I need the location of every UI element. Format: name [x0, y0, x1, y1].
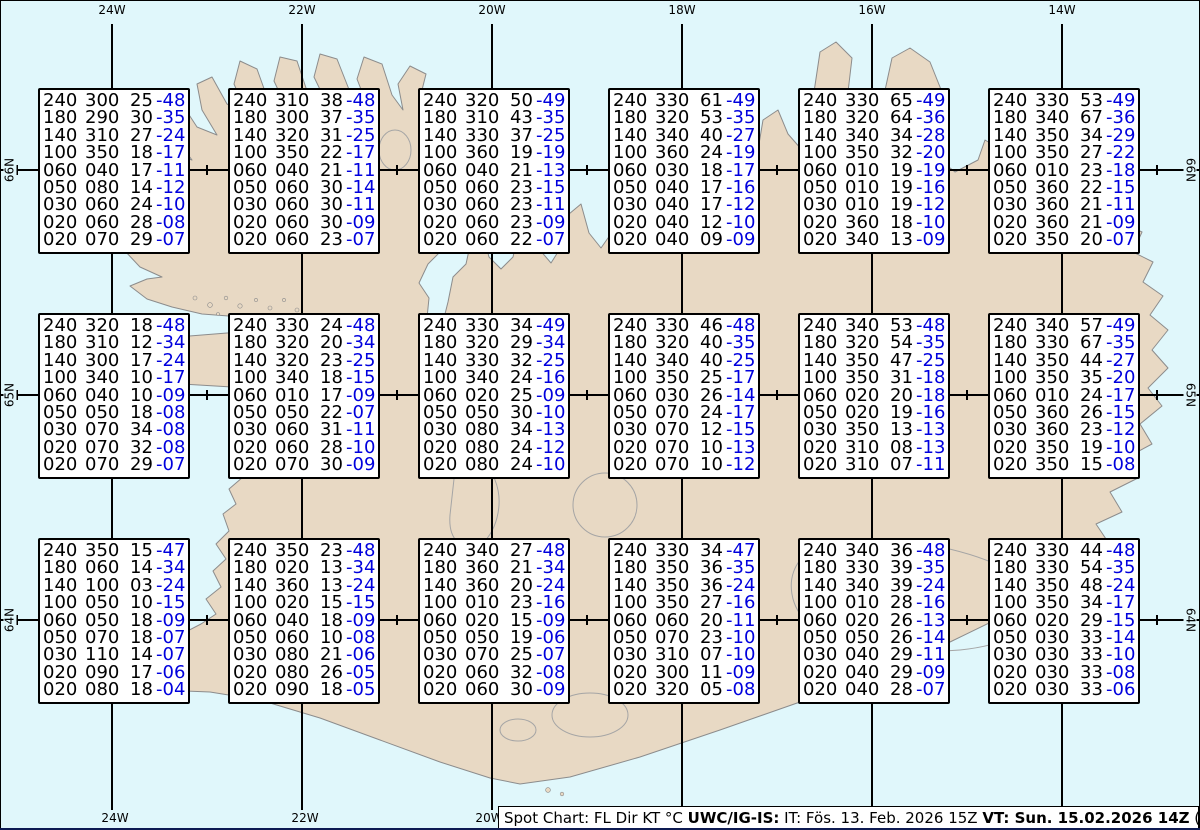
spot-data-box: 24034036-4818033039-3514034039-241000102… [798, 538, 950, 704]
fl-value: 020 [803, 231, 845, 248]
kt-value: 22 [510, 231, 536, 248]
fl-value: 020 [613, 681, 655, 698]
fl-value: 100 [233, 369, 275, 386]
kt-value: 23 [320, 231, 346, 248]
spot-data-box: 24032018-4818031012-3414030017-241003401… [38, 313, 190, 479]
spot-data-box: 24033034-4918032029-3414033032-251003402… [418, 313, 570, 479]
footer-text-segment: VT: Sun. 15.02.2026 14Z [982, 809, 1189, 827]
spot-row: 10035018-17 [43, 144, 185, 161]
temp-value: -16 [536, 594, 565, 611]
graticule-tick [586, 165, 588, 175]
kt-value: 28 [890, 681, 916, 698]
spot-data-box: 24031038-4818030037-3514032031-251003502… [228, 88, 380, 254]
spot-row: 02004028-07 [803, 681, 945, 698]
spot-data-box: 24035023-4818002013-3414036013-241000201… [228, 538, 380, 704]
kt-value: 18 [130, 144, 156, 161]
fl-value: 020 [613, 456, 655, 473]
dir-value: 340 [275, 369, 320, 386]
dir-value: 030 [1035, 681, 1080, 698]
kt-value: 30 [510, 681, 536, 698]
kt-value: 24 [510, 369, 536, 386]
spot-row: 02032005-08 [613, 681, 755, 698]
graticule-tick [206, 165, 208, 175]
dir-value: 350 [1035, 369, 1080, 386]
temp-value: -09 [726, 231, 755, 248]
dir-value: 350 [85, 144, 130, 161]
temp-value: -05 [346, 681, 375, 698]
dir-value: 080 [465, 456, 510, 473]
lon-label-top: 16W [856, 4, 887, 17]
fl-value: 020 [233, 456, 275, 473]
fl-value: 020 [43, 231, 85, 248]
fl-value: 020 [423, 681, 465, 698]
temp-value: -16 [536, 369, 565, 386]
graticule-tick [396, 165, 398, 175]
dir-value: 010 [845, 594, 890, 611]
dir-value: 070 [655, 456, 700, 473]
kt-value: 22 [320, 144, 346, 161]
dir-value: 070 [275, 456, 320, 473]
dir-value: 360 [655, 144, 700, 161]
spot-row: 10034018-15 [233, 369, 375, 386]
spot-row: 10035034-17 [993, 594, 1135, 611]
spot-row: 02035015-08 [993, 456, 1135, 473]
graticule-tick [1156, 615, 1158, 625]
fl-value: 100 [803, 369, 845, 386]
temp-value: -07 [346, 231, 375, 248]
fl-value: 020 [993, 681, 1035, 698]
dir-value: 060 [465, 231, 510, 248]
kt-value: 25 [700, 369, 726, 386]
graticule-tick [1156, 165, 1158, 175]
dir-value: 060 [465, 681, 510, 698]
footer-text-segment: Spot Chart: FL Dir KT °C [504, 809, 688, 827]
spot-row: 02031007-11 [803, 456, 945, 473]
kt-value: 33 [1080, 681, 1106, 698]
temp-value: -07 [156, 231, 185, 248]
kt-value: 32 [890, 144, 916, 161]
kt-value: 29 [130, 231, 156, 248]
graticule-tick [586, 390, 588, 400]
fl-value: 100 [613, 369, 655, 386]
temp-value: -07 [916, 681, 945, 698]
spot-row: 10005010-15 [43, 594, 185, 611]
kt-value: 28 [890, 594, 916, 611]
footer-text-segment: UWC/IG-IS: [688, 809, 780, 827]
temp-value: -18 [916, 369, 945, 386]
kt-value: 05 [700, 681, 726, 698]
spot-row: 02007029-07 [43, 231, 185, 248]
temp-value: -19 [536, 144, 565, 161]
lat-label-left: 65N [4, 381, 17, 409]
lon-label-bottom: 24W [99, 812, 130, 825]
fl-value: 100 [43, 594, 85, 611]
spot-data-box: 24032050-4918031043-3514033037-251003601… [418, 88, 570, 254]
temp-value: -17 [156, 369, 185, 386]
lat-label-right: 64N [1184, 606, 1197, 634]
fl-value: 100 [233, 144, 275, 161]
dir-value: 040 [655, 231, 700, 248]
graticule-tick [776, 165, 778, 175]
graticule-tick [206, 615, 208, 625]
temp-value: -15 [346, 369, 375, 386]
spot-row: 10035027-22 [993, 144, 1135, 161]
spot-row: 10035027-16 [613, 594, 755, 611]
temp-value: -07 [156, 456, 185, 473]
spot-row: 10035032-20 [803, 144, 945, 161]
spot-row: 02007030-09 [233, 456, 375, 473]
dir-value: 350 [655, 369, 700, 386]
fl-value: 020 [613, 231, 655, 248]
temp-value: -20 [916, 144, 945, 161]
dir-value: 090 [275, 681, 320, 698]
fl-value: 020 [993, 231, 1035, 248]
kt-value: 24 [700, 144, 726, 161]
temp-value: -19 [726, 144, 755, 161]
spot-data-box: 24033024-4818032020-3414032023-251003401… [228, 313, 380, 479]
fl-value: 100 [613, 594, 655, 611]
kt-value: 18 [320, 369, 346, 386]
fl-value: 100 [43, 369, 85, 386]
spot-row: 10035031-18 [803, 369, 945, 386]
temp-value: -10 [536, 456, 565, 473]
dir-value: 340 [85, 369, 130, 386]
temp-value: -08 [726, 681, 755, 698]
footer-bar: Spot Chart: FL Dir KT °C UWC/IG-IS: IT: … [498, 806, 1199, 829]
lon-label-top: 18W [666, 4, 697, 17]
spot-row: 10036019-19 [423, 144, 565, 161]
spot-data-box: 24035015-4718006014-3414010003-241000501… [38, 538, 190, 704]
fl-value: 020 [233, 681, 275, 698]
kt-value: 18 [320, 681, 346, 698]
temp-value: -09 [916, 231, 945, 248]
fl-value: 020 [993, 456, 1035, 473]
dir-value: 060 [275, 231, 320, 248]
kt-value: 19 [510, 144, 536, 161]
spot-data-box: 24034057-4918033067-3514035044-271003503… [988, 313, 1140, 479]
lat-label-right: 65N [1184, 381, 1197, 409]
fl-value: 100 [993, 369, 1035, 386]
fl-value: 100 [993, 594, 1035, 611]
temp-value: -04 [156, 681, 185, 698]
lat-label-left: 66N [4, 156, 17, 184]
spot-row: 10002015-15 [233, 594, 375, 611]
spot-row: 10001023-16 [423, 594, 565, 611]
graticule-tick [966, 165, 968, 175]
kt-value: 24 [510, 456, 536, 473]
dir-value: 350 [1035, 144, 1080, 161]
temp-value: -17 [346, 144, 375, 161]
fl-value: 020 [423, 231, 465, 248]
spot-data-box: 24030025-4818029030-3514031027-241003501… [38, 88, 190, 254]
spot-row: 10035022-17 [233, 144, 375, 161]
fl-value: 100 [233, 594, 275, 611]
spot-data-box: 24033034-4718035036-3514035036-241003502… [608, 538, 760, 704]
kt-value: 27 [1080, 144, 1106, 161]
spot-row: 10034024-16 [423, 369, 565, 386]
fl-value: 020 [803, 681, 845, 698]
kt-value: 10 [700, 456, 726, 473]
fl-value: 020 [43, 681, 85, 698]
fl-value: 100 [43, 144, 85, 161]
spot-row: 02006030-09 [423, 681, 565, 698]
spot-row: 02006023-07 [233, 231, 375, 248]
lon-label-bottom: 22W [289, 812, 320, 825]
kt-value: 10 [130, 369, 156, 386]
spot-row: 10036024-19 [613, 144, 755, 161]
spot-row: 02007029-07 [43, 456, 185, 473]
graticule-tick [966, 390, 968, 400]
temp-value: -17 [156, 144, 185, 161]
graticule-tick [1156, 390, 1158, 400]
temp-value: -15 [346, 594, 375, 611]
dir-value: 020 [275, 594, 320, 611]
kt-value: 10 [130, 594, 156, 611]
lon-label-top: 20W [476, 4, 507, 17]
spot-row: 02008018-04 [43, 681, 185, 698]
spot-row: 02035020-07 [993, 231, 1135, 248]
lon-label-top: 24W [96, 4, 127, 17]
dir-value: 080 [85, 681, 130, 698]
temp-value: -07 [536, 231, 565, 248]
graticule-tick [206, 390, 208, 400]
temp-value: -17 [1106, 594, 1135, 611]
graticule-tick [776, 390, 778, 400]
fl-value: 100 [423, 144, 465, 161]
temp-value: -20 [1106, 369, 1135, 386]
fl-value: 100 [423, 594, 465, 611]
spot-chart-page: 24030025-4818029030-3514031027-241003501… [0, 0, 1200, 830]
spot-row: 02008024-10 [423, 456, 565, 473]
spot-data-box: 24033065-4918032064-3614034034-281003503… [798, 88, 950, 254]
kt-value: 18 [130, 681, 156, 698]
kt-value: 13 [890, 231, 916, 248]
spot-row: 02034013-09 [803, 231, 945, 248]
lon-label-top: 22W [286, 4, 317, 17]
fl-value: 020 [803, 456, 845, 473]
kt-value: 29 [130, 456, 156, 473]
dir-value: 320 [655, 681, 700, 698]
spot-row: 02009018-05 [233, 681, 375, 698]
footer-text-segment: (+47 h) [1190, 809, 1200, 827]
kt-value: 31 [890, 369, 916, 386]
lon-label-top: 14W [1046, 4, 1077, 17]
dir-value: 350 [1035, 594, 1080, 611]
kt-value: 09 [700, 231, 726, 248]
dir-value: 350 [1035, 231, 1080, 248]
spot-row: 02007010-12 [613, 456, 755, 473]
fl-value: 020 [423, 456, 465, 473]
temp-value: -22 [1106, 144, 1135, 161]
dir-value: 350 [1035, 456, 1080, 473]
fl-value: 020 [43, 456, 85, 473]
dir-value: 360 [465, 144, 510, 161]
temp-value: -08 [1106, 456, 1135, 473]
kt-value: 15 [320, 594, 346, 611]
temp-value: -12 [726, 456, 755, 473]
dir-value: 350 [655, 594, 700, 611]
kt-value: 30 [320, 456, 346, 473]
graticule-tick [776, 615, 778, 625]
kt-value: 15 [1080, 456, 1106, 473]
spot-data-box: 24033046-4818032040-3514034040-251003502… [608, 313, 760, 479]
kt-value: 20 [1080, 231, 1106, 248]
dir-value: 040 [845, 681, 890, 698]
dir-value: 310 [845, 456, 890, 473]
graticule-tick [586, 615, 588, 625]
graticule-tick [396, 615, 398, 625]
temp-value: -15 [156, 594, 185, 611]
temp-value: -16 [916, 594, 945, 611]
fl-value: 100 [803, 144, 845, 161]
spot-row: 10035025-17 [613, 369, 755, 386]
temp-value: -11 [916, 456, 945, 473]
fl-value: 100 [423, 369, 465, 386]
kt-value: 07 [890, 456, 916, 473]
graticule-tick [396, 390, 398, 400]
spot-row: 10001028-16 [803, 594, 945, 611]
dir-value: 350 [845, 144, 890, 161]
dir-value: 070 [85, 456, 130, 473]
kt-value: 34 [1080, 594, 1106, 611]
dir-value: 350 [275, 144, 320, 161]
dir-value: 340 [465, 369, 510, 386]
dir-value: 350 [845, 369, 890, 386]
footer-text-segment: IT: Fös. 13. Feb. 2026 15Z [779, 809, 982, 827]
graticule-tick [966, 615, 968, 625]
temp-value: -17 [726, 369, 755, 386]
dir-value: 050 [85, 594, 130, 611]
spot-row: 10035035-20 [993, 369, 1135, 386]
kt-value: 27 [700, 594, 726, 611]
fl-value: 100 [993, 144, 1035, 161]
spot-row: 02004009-09 [613, 231, 755, 248]
spot-data-box: 24033044-4818033054-3514035048-241003503… [988, 538, 1140, 704]
kt-value: 23 [510, 594, 536, 611]
kt-value: 35 [1080, 369, 1106, 386]
lat-label-left: 64N [4, 606, 17, 634]
temp-value: -09 [346, 456, 375, 473]
dir-value: 010 [465, 594, 510, 611]
fl-value: 100 [613, 144, 655, 161]
spot-row: 02006022-07 [423, 231, 565, 248]
spot-data-box: 24034053-4818032054-3514035047-251003503… [798, 313, 950, 479]
temp-value: -07 [1106, 231, 1135, 248]
dir-value: 340 [845, 231, 890, 248]
spot-data-box: 24033061-4918032053-3514034040-271003602… [608, 88, 760, 254]
temp-value: -09 [536, 681, 565, 698]
temp-value: -16 [726, 594, 755, 611]
spot-row: 10034010-17 [43, 369, 185, 386]
dir-value: 070 [85, 231, 130, 248]
fl-value: 020 [233, 231, 275, 248]
lat-label-right: 66N [1184, 156, 1197, 184]
spot-data-box: 24033053-4918034067-3614035034-291003502… [988, 88, 1140, 254]
fl-value: 100 [803, 594, 845, 611]
spot-row: 02003033-06 [993, 681, 1135, 698]
spot-data-box: 24034027-4818036021-3414036020-241000102… [418, 538, 570, 704]
temp-value: -06 [1106, 681, 1135, 698]
